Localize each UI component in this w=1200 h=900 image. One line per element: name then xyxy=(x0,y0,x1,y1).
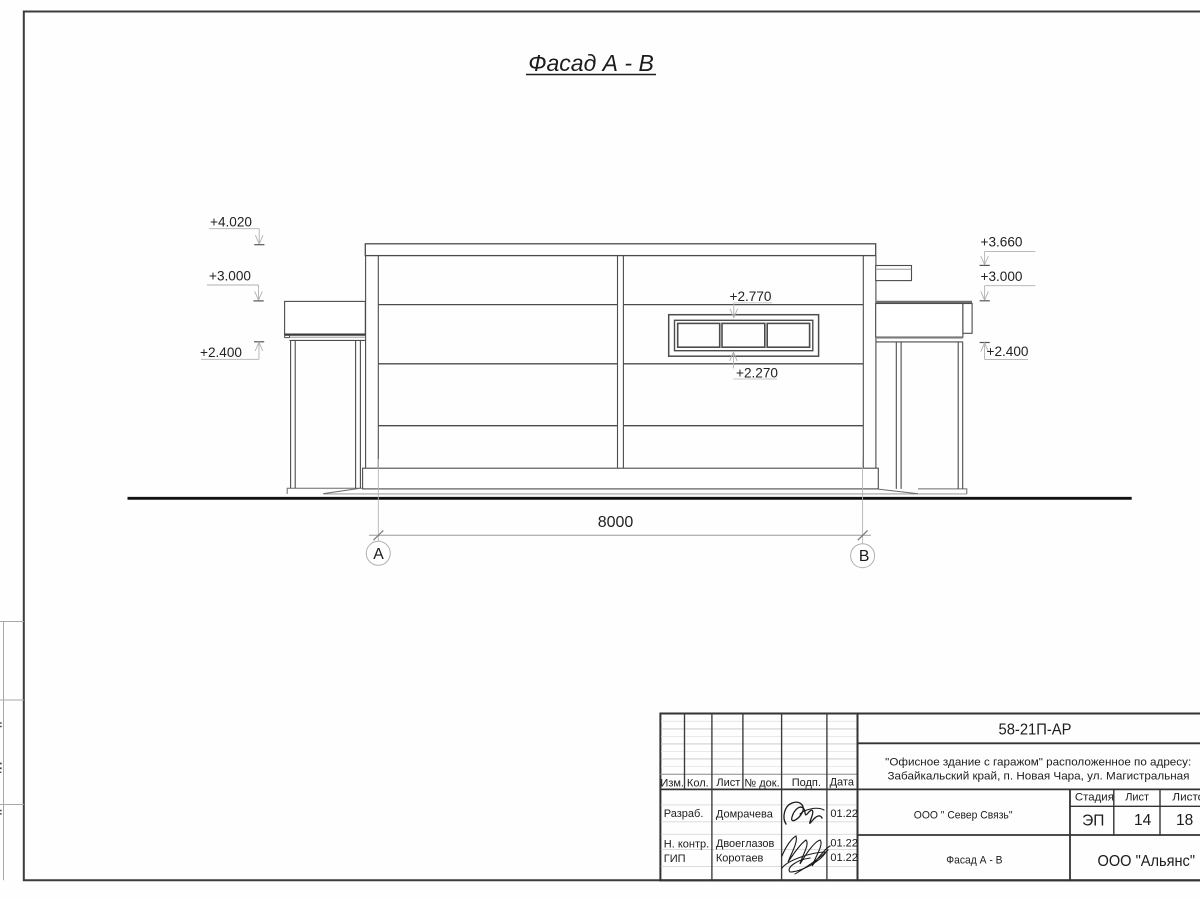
svg-text:ГИП: ГИП xyxy=(664,853,686,865)
svg-text:18: 18 xyxy=(1176,812,1193,829)
svg-text:01.22: 01.22 xyxy=(830,838,858,850)
svg-text:Кол.: Кол. xyxy=(687,777,709,789)
svg-text:+3.660: +3.660 xyxy=(981,235,1023,250)
svg-text:Изм.: Изм. xyxy=(660,777,684,789)
svg-text:+2.270: +2.270 xyxy=(736,366,778,381)
svg-text:Двоеглазов: Двоеглазов xyxy=(716,838,775,850)
svg-text:А: А xyxy=(373,546,384,563)
svg-text:+2.770: +2.770 xyxy=(730,289,772,304)
svg-text:ООО "Альянс": ООО "Альянс" xyxy=(1098,853,1196,870)
svg-text:+3.000: +3.000 xyxy=(209,269,251,284)
svg-text:"Офисное здание с гаражом" рас: "Офисное здание с гаражом" расположенное… xyxy=(885,757,1191,769)
svg-text:Фасад А - В: Фасад А - В xyxy=(946,854,1002,866)
svg-text:Домрачева: Домрачева xyxy=(716,809,774,821)
svg-text:В: В xyxy=(859,548,870,565)
svg-text:+2.400: +2.400 xyxy=(987,344,1029,359)
svg-text:+3.000: +3.000 xyxy=(981,269,1023,284)
svg-text:Фасад А - В: Фасад А - В xyxy=(528,50,654,76)
svg-text:ООО " Север Связь": ООО " Север Связь" xyxy=(914,809,1013,821)
svg-text:58-21П-АР: 58-21П-АР xyxy=(999,722,1072,739)
svg-text:Забайкальский край, п. Новая Ч: Забайкальский край, п. Новая Чара, ул. М… xyxy=(888,771,1190,783)
svg-text:ЭП: ЭП xyxy=(1082,812,1104,829)
svg-text:01.22: 01.22 xyxy=(830,852,858,864)
svg-text:Дата: Дата xyxy=(830,777,855,789)
svg-text:Коротаев: Коротаев xyxy=(716,853,764,865)
svg-text:8000: 8000 xyxy=(598,514,634,531)
svg-text:+4.020: +4.020 xyxy=(210,215,252,230)
svg-text:01.22: 01.22 xyxy=(830,808,858,820)
svg-text:Листов: Листов xyxy=(1172,791,1200,803)
svg-text:+2.400: +2.400 xyxy=(200,345,242,360)
svg-text:Подп.: Подп. xyxy=(792,777,821,789)
svg-text:14: 14 xyxy=(1134,812,1152,829)
svg-text:№ док.: № док. xyxy=(744,777,779,789)
svg-text:Лист: Лист xyxy=(716,777,740,789)
svg-text:Разраб.: Разраб. xyxy=(664,808,704,820)
svg-text:Лист: Лист xyxy=(1125,791,1149,803)
svg-text:Н. контр.: Н. контр. xyxy=(664,839,709,851)
svg-text:Стадия: Стадия xyxy=(1075,791,1114,803)
